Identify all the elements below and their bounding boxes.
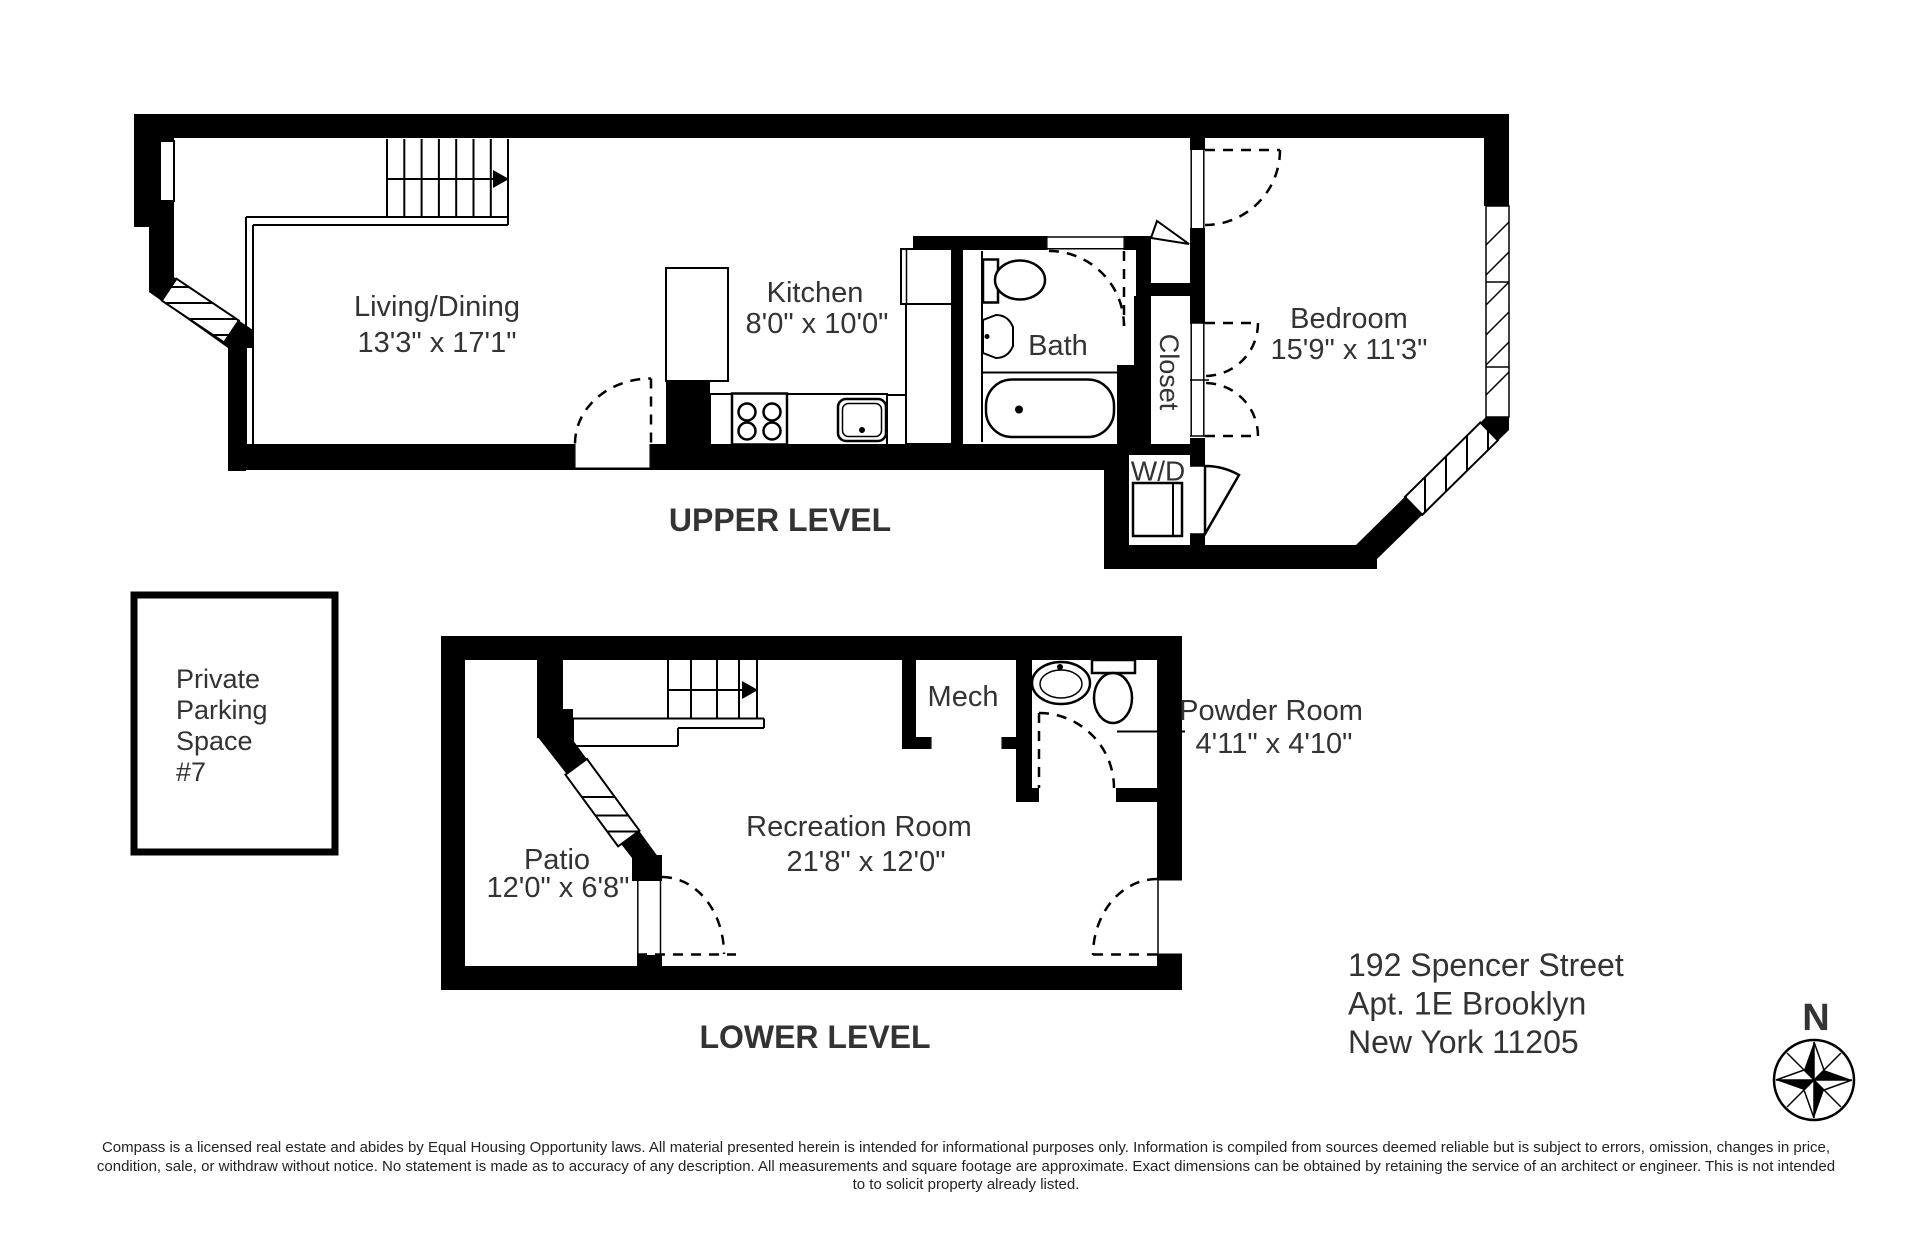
svg-text:Living/Dining: Living/Dining: [354, 291, 520, 323]
svg-text:4'11" x 4'10": 4'11" x 4'10": [1196, 728, 1353, 760]
svg-text:New York 11205: New York 11205: [1348, 1024, 1579, 1060]
svg-text:Recreation Room: Recreation Room: [746, 811, 972, 843]
svg-text:15'9" x 11'3": 15'9" x 11'3": [1271, 334, 1428, 366]
svg-text:12'0" x 6'8": 12'0" x 6'8": [487, 872, 630, 904]
svg-text:21'8" x 12'0": 21'8" x 12'0": [786, 846, 945, 878]
svg-text:LOWER LEVEL: LOWER LEVEL: [699, 1019, 930, 1055]
svg-text:#7: #7: [176, 757, 206, 787]
svg-text:UPPER LEVEL: UPPER LEVEL: [669, 502, 891, 538]
svg-text:8'0" x 10'0": 8'0" x 10'0": [746, 308, 889, 340]
svg-text:Mech: Mech: [928, 681, 999, 713]
svg-text:N: N: [1802, 997, 1829, 1039]
svg-text:Space: Space: [176, 726, 253, 756]
svg-text:Closet: Closet: [1154, 334, 1184, 411]
svg-text:Apt. 1E Brooklyn: Apt. 1E Brooklyn: [1348, 986, 1586, 1022]
svg-text:Bedroom: Bedroom: [1290, 303, 1408, 335]
svg-text:Parking: Parking: [176, 695, 268, 725]
svg-text:13'3" x 17'1": 13'3" x 17'1": [357, 327, 516, 359]
svg-text:192 Spencer Street: 192 Spencer Street: [1348, 947, 1624, 983]
svg-text:Powder Room: Powder Room: [1179, 695, 1363, 727]
svg-text:Bath: Bath: [1028, 330, 1088, 362]
svg-text:Kitchen: Kitchen: [767, 277, 864, 309]
svg-text:Private: Private: [176, 664, 260, 694]
